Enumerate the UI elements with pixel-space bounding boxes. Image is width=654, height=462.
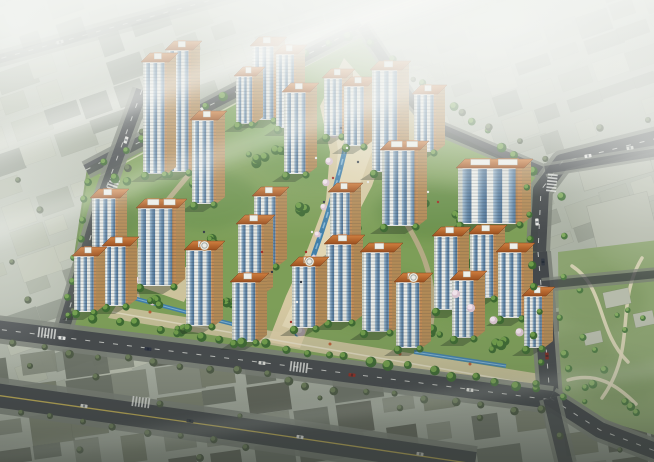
- city-tree: [24, 296, 31, 303]
- hip-roof: [380, 141, 429, 150]
- penthouse: [250, 215, 258, 221]
- car-windshield: [147, 347, 149, 350]
- pedestrian: [271, 271, 273, 273]
- penthouse: [154, 53, 161, 59]
- green-tree: [360, 330, 368, 338]
- green-tree: [522, 346, 530, 354]
- green-tree: [184, 324, 192, 332]
- tower-side-windows: [422, 275, 431, 348]
- city-tree: [510, 407, 518, 415]
- green-tree: [78, 236, 85, 243]
- park-tree: [582, 399, 587, 404]
- city-block: [20, 350, 57, 376]
- green-tree: [430, 149, 437, 156]
- green-tree: [170, 283, 177, 290]
- city-block: [168, 455, 198, 462]
- city-tree: [459, 109, 466, 116]
- city-tree: [301, 382, 309, 390]
- city-block: [642, 0, 654, 14]
- city-block: [641, 93, 654, 115]
- pedestrian: [315, 157, 317, 159]
- city-block: [0, 418, 22, 437]
- city-tree: [125, 354, 132, 361]
- penthouse: [265, 187, 272, 193]
- flower-bed: [329, 343, 332, 346]
- city-tree: [617, 447, 622, 452]
- green-tree: [412, 223, 419, 230]
- green-tree: [538, 345, 545, 352]
- floor-lines: [292, 266, 318, 328]
- pedestrian: [437, 201, 439, 203]
- floor-lines: [138, 208, 176, 286]
- city-tree: [517, 138, 523, 144]
- green-tree: [252, 339, 259, 346]
- penthouse: [446, 227, 454, 233]
- penthouse: [164, 199, 175, 205]
- penthouse: [334, 69, 340, 75]
- car: [541, 258, 545, 265]
- city-block: [534, 103, 560, 124]
- hip-roof: [136, 199, 187, 208]
- city-tree: [42, 344, 48, 350]
- city-tree: [15, 177, 21, 183]
- green-tree: [386, 329, 393, 336]
- pink-tree: [314, 231, 320, 237]
- city-block: [0, 262, 7, 281]
- green-tree: [370, 170, 378, 178]
- green-tree: [446, 372, 456, 382]
- pedestrian: [290, 321, 292, 323]
- helipad: [409, 273, 419, 283]
- flower-bed: [149, 311, 152, 314]
- green-tree: [230, 340, 238, 348]
- penthouse: [244, 273, 252, 279]
- green-tree: [282, 346, 290, 354]
- pink-tree: [489, 316, 497, 324]
- tower-side-windows: [436, 87, 445, 152]
- tower-side-windows: [354, 237, 363, 322]
- green-tree: [450, 336, 458, 344]
- pedestrian: [305, 251, 307, 253]
- city-tree: [596, 124, 604, 132]
- city-tree: [156, 400, 163, 407]
- floor-lines: [362, 252, 392, 332]
- city-tree: [233, 366, 242, 375]
- pedestrian: [346, 147, 348, 149]
- city-block: [616, 19, 651, 43]
- floor-lines: [74, 256, 96, 312]
- green-tree: [210, 201, 217, 208]
- city-tree: [177, 364, 184, 371]
- green-tree: [490, 295, 497, 302]
- pink-tree: [322, 179, 329, 186]
- pink-tree: [467, 304, 475, 312]
- green-tree: [215, 336, 223, 344]
- pedestrian: [311, 231, 313, 233]
- city-block: [624, 42, 654, 72]
- green-tree: [416, 345, 423, 352]
- city-block: [435, 30, 469, 54]
- green-tree: [516, 221, 523, 228]
- city-block: [543, 16, 581, 44]
- floor-lines: [458, 168, 522, 224]
- green-tree: [202, 103, 209, 110]
- city-tree: [542, 156, 548, 162]
- aerial-site-rendering: [0, 0, 654, 462]
- penthouse: [463, 271, 470, 277]
- city-block: [575, 118, 598, 141]
- tower-side-windows: [476, 273, 485, 338]
- floor-lines: [104, 246, 128, 306]
- green-tree: [360, 143, 367, 150]
- tower-side-windows: [544, 289, 553, 348]
- green-tree: [237, 338, 247, 348]
- city-block: [211, 20, 237, 41]
- car-windshield: [351, 373, 353, 376]
- city-tree: [9, 339, 16, 346]
- green-tree: [524, 184, 530, 190]
- park-tree: [615, 313, 620, 318]
- penthouse: [471, 159, 490, 165]
- green-tree: [190, 202, 198, 210]
- car-windshield: [536, 221, 539, 223]
- park-tree: [625, 307, 631, 313]
- green-tree: [450, 102, 459, 111]
- city-tree: [27, 363, 33, 369]
- green-tree: [64, 294, 71, 301]
- city-block: [550, 42, 579, 61]
- park-tree: [592, 347, 598, 353]
- green-tree: [208, 323, 215, 330]
- helipad: [200, 241, 210, 251]
- park-tree: [560, 350, 568, 358]
- penthouse: [338, 235, 346, 241]
- green-tree: [312, 325, 319, 332]
- penthouse: [341, 183, 348, 189]
- tower-side-windows: [318, 259, 327, 328]
- green-tree: [380, 224, 388, 232]
- car: [545, 352, 549, 359]
- park-tree: [560, 274, 566, 280]
- green-tree: [468, 118, 476, 126]
- green-tree: [432, 308, 440, 316]
- green-tree: [197, 332, 207, 342]
- city-block: [558, 66, 593, 93]
- city-block: [2, 0, 40, 2]
- green-tree: [131, 318, 140, 327]
- green-tree: [526, 212, 532, 218]
- green-tree: [489, 346, 496, 353]
- city-tree: [264, 370, 271, 377]
- city-block: [493, 0, 528, 4]
- apartment-tower: [446, 158, 533, 232]
- city-tree: [330, 387, 339, 396]
- pedestrian: [203, 231, 205, 233]
- green-tree: [282, 172, 290, 180]
- green-tree: [122, 303, 129, 310]
- floor-lines: [524, 296, 544, 348]
- green-tree: [326, 352, 333, 359]
- city-block: [0, 0, 6, 17]
- city-block: [471, 413, 500, 440]
- city-tree: [18, 410, 24, 416]
- green-tree: [155, 301, 163, 309]
- penthouse: [115, 237, 122, 243]
- pedestrian: [300, 281, 302, 283]
- penthouse: [203, 111, 210, 117]
- green-tree: [510, 151, 518, 159]
- city-tree: [537, 405, 545, 413]
- car-windshield: [261, 361, 263, 364]
- city-block: [451, 80, 472, 97]
- green-tree: [497, 143, 507, 153]
- penthouse: [384, 61, 392, 67]
- city-block: [502, 6, 541, 32]
- penthouse: [295, 83, 302, 89]
- tower-side-windows: [214, 243, 223, 326]
- park-tree: [627, 403, 635, 411]
- penthouse: [482, 225, 490, 231]
- car-windshield: [419, 452, 421, 455]
- park-tree: [640, 315, 646, 321]
- city-block: [202, 386, 237, 405]
- green-tree: [173, 330, 180, 337]
- city-block: [510, 29, 542, 49]
- green-tree: [295, 202, 304, 211]
- pedestrian: [296, 301, 298, 303]
- city-block: [568, 0, 601, 12]
- car-windshield: [61, 336, 63, 339]
- tower-side-windows: [96, 249, 105, 312]
- city-block: [0, 15, 11, 47]
- park-tree: [557, 192, 565, 200]
- green-tree: [437, 331, 443, 337]
- floor-lines: [396, 282, 422, 348]
- floor-lines: [232, 282, 258, 342]
- city-tree: [284, 377, 293, 386]
- penthouse: [178, 41, 185, 47]
- city-block: [476, 443, 523, 462]
- pedestrian: [357, 161, 359, 163]
- hip-roof: [456, 159, 533, 168]
- green-tree: [302, 171, 309, 178]
- pink-tree: [325, 157, 333, 165]
- tower-side-windows: [418, 143, 427, 226]
- city-tree: [196, 454, 204, 462]
- park-tree: [557, 315, 563, 321]
- car-windshield: [542, 261, 545, 263]
- green-tree: [123, 147, 130, 154]
- tower-side-windows: [176, 201, 185, 286]
- car-windshield: [83, 404, 85, 407]
- road-south-down: [550, 398, 566, 462]
- pink-tree: [320, 204, 326, 210]
- penthouse: [510, 243, 518, 249]
- city-block: [599, 77, 637, 99]
- city-tree: [92, 373, 99, 380]
- city-tree: [9, 259, 15, 265]
- city-tree: [645, 117, 651, 123]
- car-windshield: [299, 435, 301, 438]
- park-tree: [579, 334, 586, 341]
- green-tree: [272, 263, 279, 270]
- green-tree: [348, 319, 355, 326]
- green-tree: [72, 310, 80, 318]
- green-tree: [528, 261, 536, 269]
- pedestrian: [261, 251, 263, 253]
- penthouse: [355, 77, 362, 83]
- pedestrian: [332, 177, 334, 179]
- city-tree: [80, 419, 86, 425]
- city-block: [515, 53, 551, 76]
- green-tree: [527, 236, 534, 243]
- city-block: [210, 450, 244, 462]
- penthouse: [498, 159, 517, 165]
- green-tree: [147, 297, 154, 304]
- helipad: [305, 257, 315, 267]
- penthouse: [148, 199, 159, 205]
- green-tree: [538, 359, 545, 366]
- city-tree: [485, 123, 492, 130]
- park-tree: [633, 409, 640, 416]
- green-tree: [394, 346, 402, 354]
- city-tree: [95, 355, 101, 361]
- floor-lines: [186, 250, 214, 326]
- penthouse: [375, 243, 384, 249]
- city-tree: [47, 413, 53, 419]
- city-block: [13, 1, 50, 32]
- penthouse: [407, 141, 418, 147]
- car-windshield: [546, 355, 549, 357]
- pink-tree: [515, 328, 523, 336]
- tower-side-windows: [128, 239, 137, 306]
- flower-bed: [469, 363, 472, 366]
- city-tree: [477, 415, 484, 422]
- green-tree: [290, 326, 298, 334]
- tower-side-windows: [278, 189, 287, 266]
- city-block: [468, 15, 506, 38]
- city-tree: [65, 350, 74, 359]
- floor-lines: [498, 252, 524, 318]
- green-tree: [100, 158, 107, 165]
- pink-tree: [452, 290, 460, 298]
- city-block: [608, 0, 636, 21]
- city-block: [633, 71, 654, 89]
- floor-lines: [382, 150, 418, 226]
- city-tree: [206, 366, 214, 374]
- green-tree: [496, 340, 506, 350]
- pedestrian: [367, 181, 369, 183]
- green-tree: [430, 366, 440, 376]
- green-tree: [340, 352, 348, 360]
- pedestrian: [323, 201, 325, 203]
- green-tree: [530, 332, 538, 340]
- city-tree: [242, 444, 249, 451]
- city-block: [426, 421, 452, 441]
- city-tree: [556, 432, 563, 439]
- pedestrian: [427, 191, 429, 193]
- city-block: [443, 53, 475, 77]
- city-block: [46, 0, 85, 20]
- penthouse: [85, 247, 92, 253]
- green-tree: [530, 283, 538, 291]
- green-tree: [116, 318, 124, 326]
- green-tree: [136, 284, 144, 292]
- green-tree: [157, 326, 165, 334]
- park-tree: [561, 233, 568, 240]
- car: [535, 218, 539, 225]
- city-block: [567, 89, 604, 112]
- green-tree: [404, 361, 412, 369]
- green-tree: [537, 309, 543, 315]
- green-tree: [366, 357, 377, 368]
- floor-lines: [326, 244, 354, 322]
- green-tree: [382, 360, 393, 371]
- city-block: [526, 78, 555, 99]
- green-tree: [261, 338, 270, 347]
- green-tree: [304, 350, 311, 357]
- city-tree: [149, 358, 157, 366]
- penthouse: [391, 141, 402, 147]
- green-tree: [470, 335, 477, 342]
- tower-side-windows: [258, 275, 267, 342]
- green-tree: [88, 314, 97, 323]
- park-tree: [622, 327, 628, 333]
